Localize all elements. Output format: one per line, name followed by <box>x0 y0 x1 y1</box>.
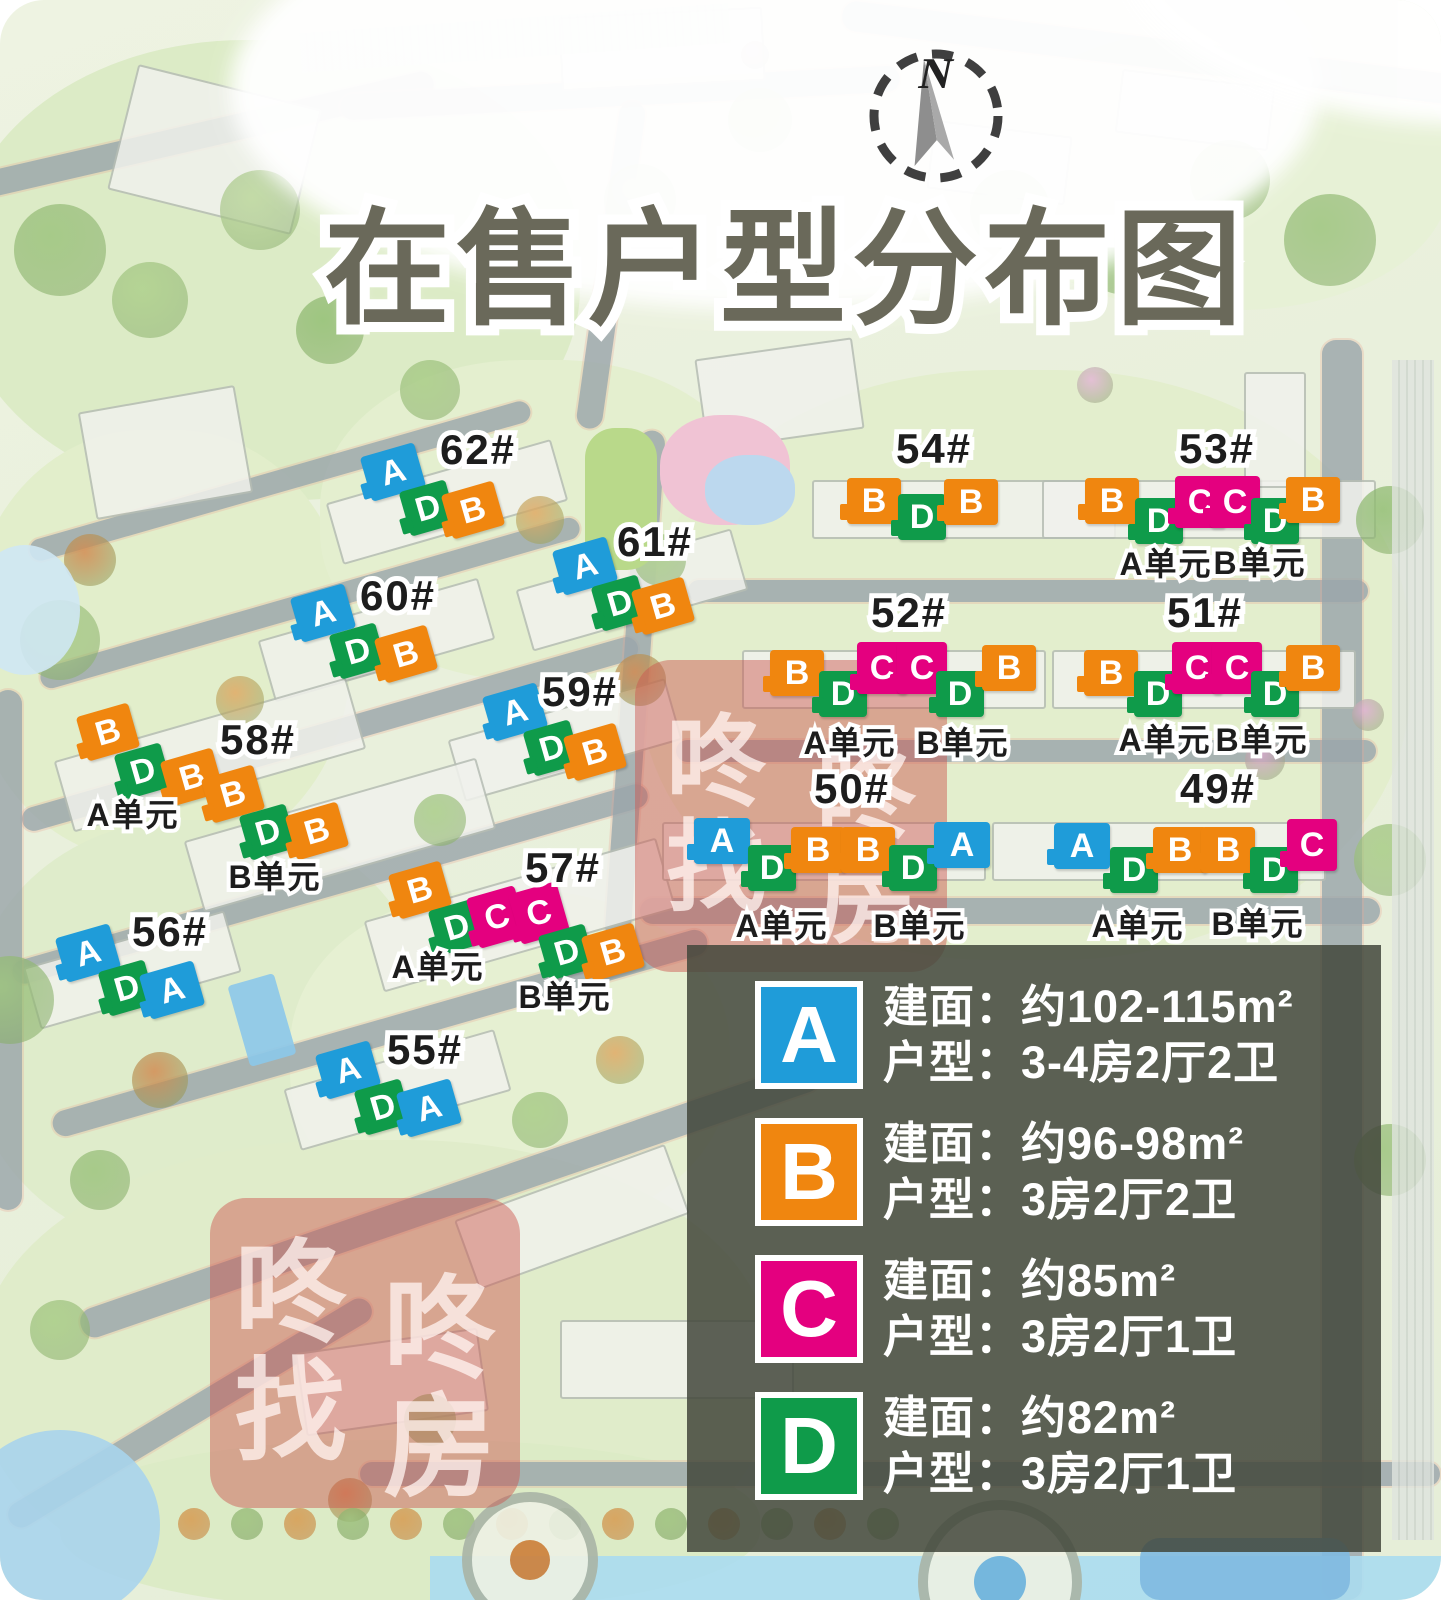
unit-entrance-label-text: B单元 <box>873 910 966 942</box>
tree-row-tree <box>602 1508 634 1540</box>
building-label: 51#51# <box>1167 592 1243 634</box>
unit-marker-b: B <box>1286 477 1340 523</box>
tree-row-tree <box>337 1508 369 1540</box>
fountain-core <box>510 1540 550 1580</box>
fountain-core <box>974 1556 1026 1600</box>
compass: N <box>863 40 1009 186</box>
building-label: 59#59# <box>542 671 618 713</box>
master-plan-map: N 在售户型分布图 在售户型分布图 咚 咚 找 房 咚 咚 找 房 ADB62#… <box>0 0 1441 1600</box>
unit-entrance-label-text: B单元 <box>1215 724 1308 756</box>
page-title: 在售户型分布图 在售户型分布图 <box>324 207 1248 333</box>
unit-entrance-label-text: A单元 <box>1091 910 1184 942</box>
building-label: 49#49# <box>1180 768 1256 810</box>
building-label: 50#50# <box>814 768 890 810</box>
legend-layout-text: 户型：3房2厅2卫 <box>883 1172 1244 1228</box>
unit-marker-a: A <box>694 818 750 864</box>
building-label-text: 57# <box>525 847 601 889</box>
unit-entrance-label: A单元A单元 <box>391 951 484 983</box>
unit-marker-b: B <box>1085 478 1139 524</box>
unit-entrance-label-text: A单元 <box>735 910 828 942</box>
unit-entrance-label: B单元B单元 <box>1213 547 1306 579</box>
unit-marker-b: B <box>1201 827 1255 873</box>
watermark-char: 房 <box>384 1389 496 1507</box>
unit-marker-b: B <box>982 645 1036 691</box>
legend-row-a: A建面：约102-115m²户型：3-4房2厅2卫 <box>687 975 1381 1095</box>
unit-entrance-label-text: A单元 <box>1118 724 1211 756</box>
watermark-char: 找 <box>235 1353 347 1471</box>
legend-text-a: 建面：约102-115m²户型：3-4房2厅2卫 <box>883 979 1294 1091</box>
legend-area-text: 建面：约82m² <box>883 1390 1237 1446</box>
unit-marker-b: B <box>1084 650 1138 696</box>
building-label: 54#54# <box>896 428 972 470</box>
unit-marker-a: A <box>934 822 990 868</box>
legend-area-text: 建面：约85m² <box>883 1253 1237 1309</box>
tree <box>132 1052 188 1108</box>
unit-marker-b: B <box>944 479 998 525</box>
building-label: 52#52# <box>871 592 947 634</box>
unit-entrance-label: A单元A单元 <box>86 799 179 831</box>
tree <box>1352 699 1384 731</box>
tree <box>1077 367 1113 403</box>
unit-entrance-label: B单元B单元 <box>1211 908 1304 940</box>
page-title-text: 在售户型分布图 <box>324 207 1248 333</box>
legend-area-text: 建面：约96-98m² <box>883 1116 1244 1172</box>
unit-entrance-label-text: A单元 <box>1119 548 1212 580</box>
playground-pool <box>705 455 795 525</box>
tree <box>112 262 188 338</box>
unit-entrance-label: A单元A单元 <box>1118 724 1211 756</box>
watermark-char: 咚 <box>666 711 766 816</box>
site-plan-poster: N 在售户型分布图 在售户型分布图 咚 咚 找 房 咚 咚 找 房 ADB62#… <box>0 0 1441 1600</box>
unit-marker-b: B <box>1286 645 1340 691</box>
legend-text-b: 建面：约96-98m²户型：3房2厅2卫 <box>883 1116 1244 1228</box>
tree-row-tree <box>231 1508 263 1540</box>
unit-entrance-label-text: A单元 <box>86 799 179 831</box>
tree <box>414 794 466 846</box>
building-label-text: 55# <box>387 1029 463 1071</box>
building-label-text: 62# <box>440 429 516 471</box>
watermark-badge: 咚 咚 找 房 <box>210 1198 520 1508</box>
unit-marker-b: B <box>841 827 895 873</box>
legend-layout-text: 户型：3房2厅1卫 <box>883 1309 1237 1365</box>
legend-badge-b: B <box>755 1118 863 1226</box>
building-label-text: 56# <box>132 911 208 953</box>
building-label-text: 50# <box>814 768 890 810</box>
unit-entrance-label: A单元A单元 <box>1091 910 1184 942</box>
building-label: 57#57# <box>525 847 601 889</box>
legend-area-text: 建面：约102-115m² <box>883 979 1294 1035</box>
unit-entrance-label-text: B单元 <box>1211 908 1304 940</box>
building-label: 55#55# <box>387 1029 463 1071</box>
unit-entrance-label: A单元A单元 <box>803 727 896 759</box>
unit-entrance-label: B单元B单元 <box>916 727 1009 759</box>
building-label: 56#56# <box>132 911 208 953</box>
unit-marker-b: B <box>770 650 824 696</box>
building-label: 53#53# <box>1179 428 1255 470</box>
building-label: 61#61# <box>617 521 693 563</box>
road <box>0 690 22 1210</box>
building-label-text: 59# <box>542 671 618 713</box>
tree-row-tree <box>178 1508 210 1540</box>
building-label-text: 52# <box>871 592 947 634</box>
unit-entrance-label: B单元B单元 <box>1215 724 1308 756</box>
road <box>688 580 1368 602</box>
unit-entrance-label-text: B单元 <box>228 861 321 893</box>
building-label-text: 60# <box>360 575 436 617</box>
legend-text-c: 建面：约85m²户型：3房2厅1卫 <box>883 1253 1237 1365</box>
unit-entrance-label-text: B单元 <box>518 981 611 1013</box>
tree-row-tree <box>390 1508 422 1540</box>
legend-layout-text: 户型：3-4房2厅2卫 <box>883 1035 1294 1091</box>
unit-marker-b: B <box>847 478 901 524</box>
unit-entrance-label-text: B单元 <box>1213 547 1306 579</box>
unit-entrance-label: A单元A单元 <box>735 910 828 942</box>
parking-strip <box>1392 360 1434 1540</box>
unit-entrance-label: A单元A单元 <box>1119 548 1212 580</box>
unit-entrance-label-text: A单元 <box>391 951 484 983</box>
unit-entrance-label-text: A单元 <box>803 727 896 759</box>
tree <box>512 1092 568 1148</box>
legend-panel: A建面：约102-115m²户型：3-4房2厅2卫B建面：约96-98m²户型：… <box>687 945 1381 1552</box>
watermark-char: 咚 <box>384 1271 496 1389</box>
watermark-char: 咚 <box>235 1235 347 1353</box>
tree-row-tree <box>284 1508 316 1540</box>
unit-marker-c: C <box>1287 819 1337 871</box>
building-label-text: 54# <box>896 428 972 470</box>
tree <box>596 1036 644 1084</box>
legend-row-d: D建面：约82m²户型：3房2厅1卫 <box>687 1386 1381 1506</box>
tree <box>70 1150 130 1210</box>
legend-row-b: B建面：约96-98m²户型：3房2厅2卫 <box>687 1112 1381 1232</box>
building-label-text: 53# <box>1179 428 1255 470</box>
tree <box>30 1300 90 1360</box>
legend-layout-text: 户型：3房2厅1卫 <box>883 1446 1237 1502</box>
building-label-text: 49# <box>1180 768 1256 810</box>
unit-entrance-label-text: B单元 <box>916 727 1009 759</box>
building-label-text: 58# <box>220 719 296 761</box>
building-label-text: 51# <box>1167 592 1243 634</box>
legend-badge-c: C <box>755 1255 863 1363</box>
tree <box>516 496 564 544</box>
unit-entrance-label: B单元B单元 <box>873 910 966 942</box>
building-label: 62#62# <box>440 429 516 471</box>
tree <box>1284 194 1376 286</box>
tree <box>400 360 460 420</box>
legend-badge-d: D <box>755 1392 863 1500</box>
legend-badge-a: A <box>755 981 863 1089</box>
unit-entrance-label: B单元B单元 <box>518 981 611 1013</box>
unit-entrance-label: B单元B单元 <box>228 861 321 893</box>
tree-row-tree <box>655 1508 687 1540</box>
legend-row-c: C建面：约85m²户型：3房2厅1卫 <box>687 1249 1381 1369</box>
legend-text-d: 建面：约82m²户型：3房2厅1卫 <box>883 1390 1237 1502</box>
tree <box>14 204 106 296</box>
building-label: 60#60# <box>360 575 436 617</box>
building-label-text: 61# <box>617 521 693 563</box>
unit-marker-a: A <box>1054 823 1110 869</box>
building-label: 58#58# <box>220 719 296 761</box>
